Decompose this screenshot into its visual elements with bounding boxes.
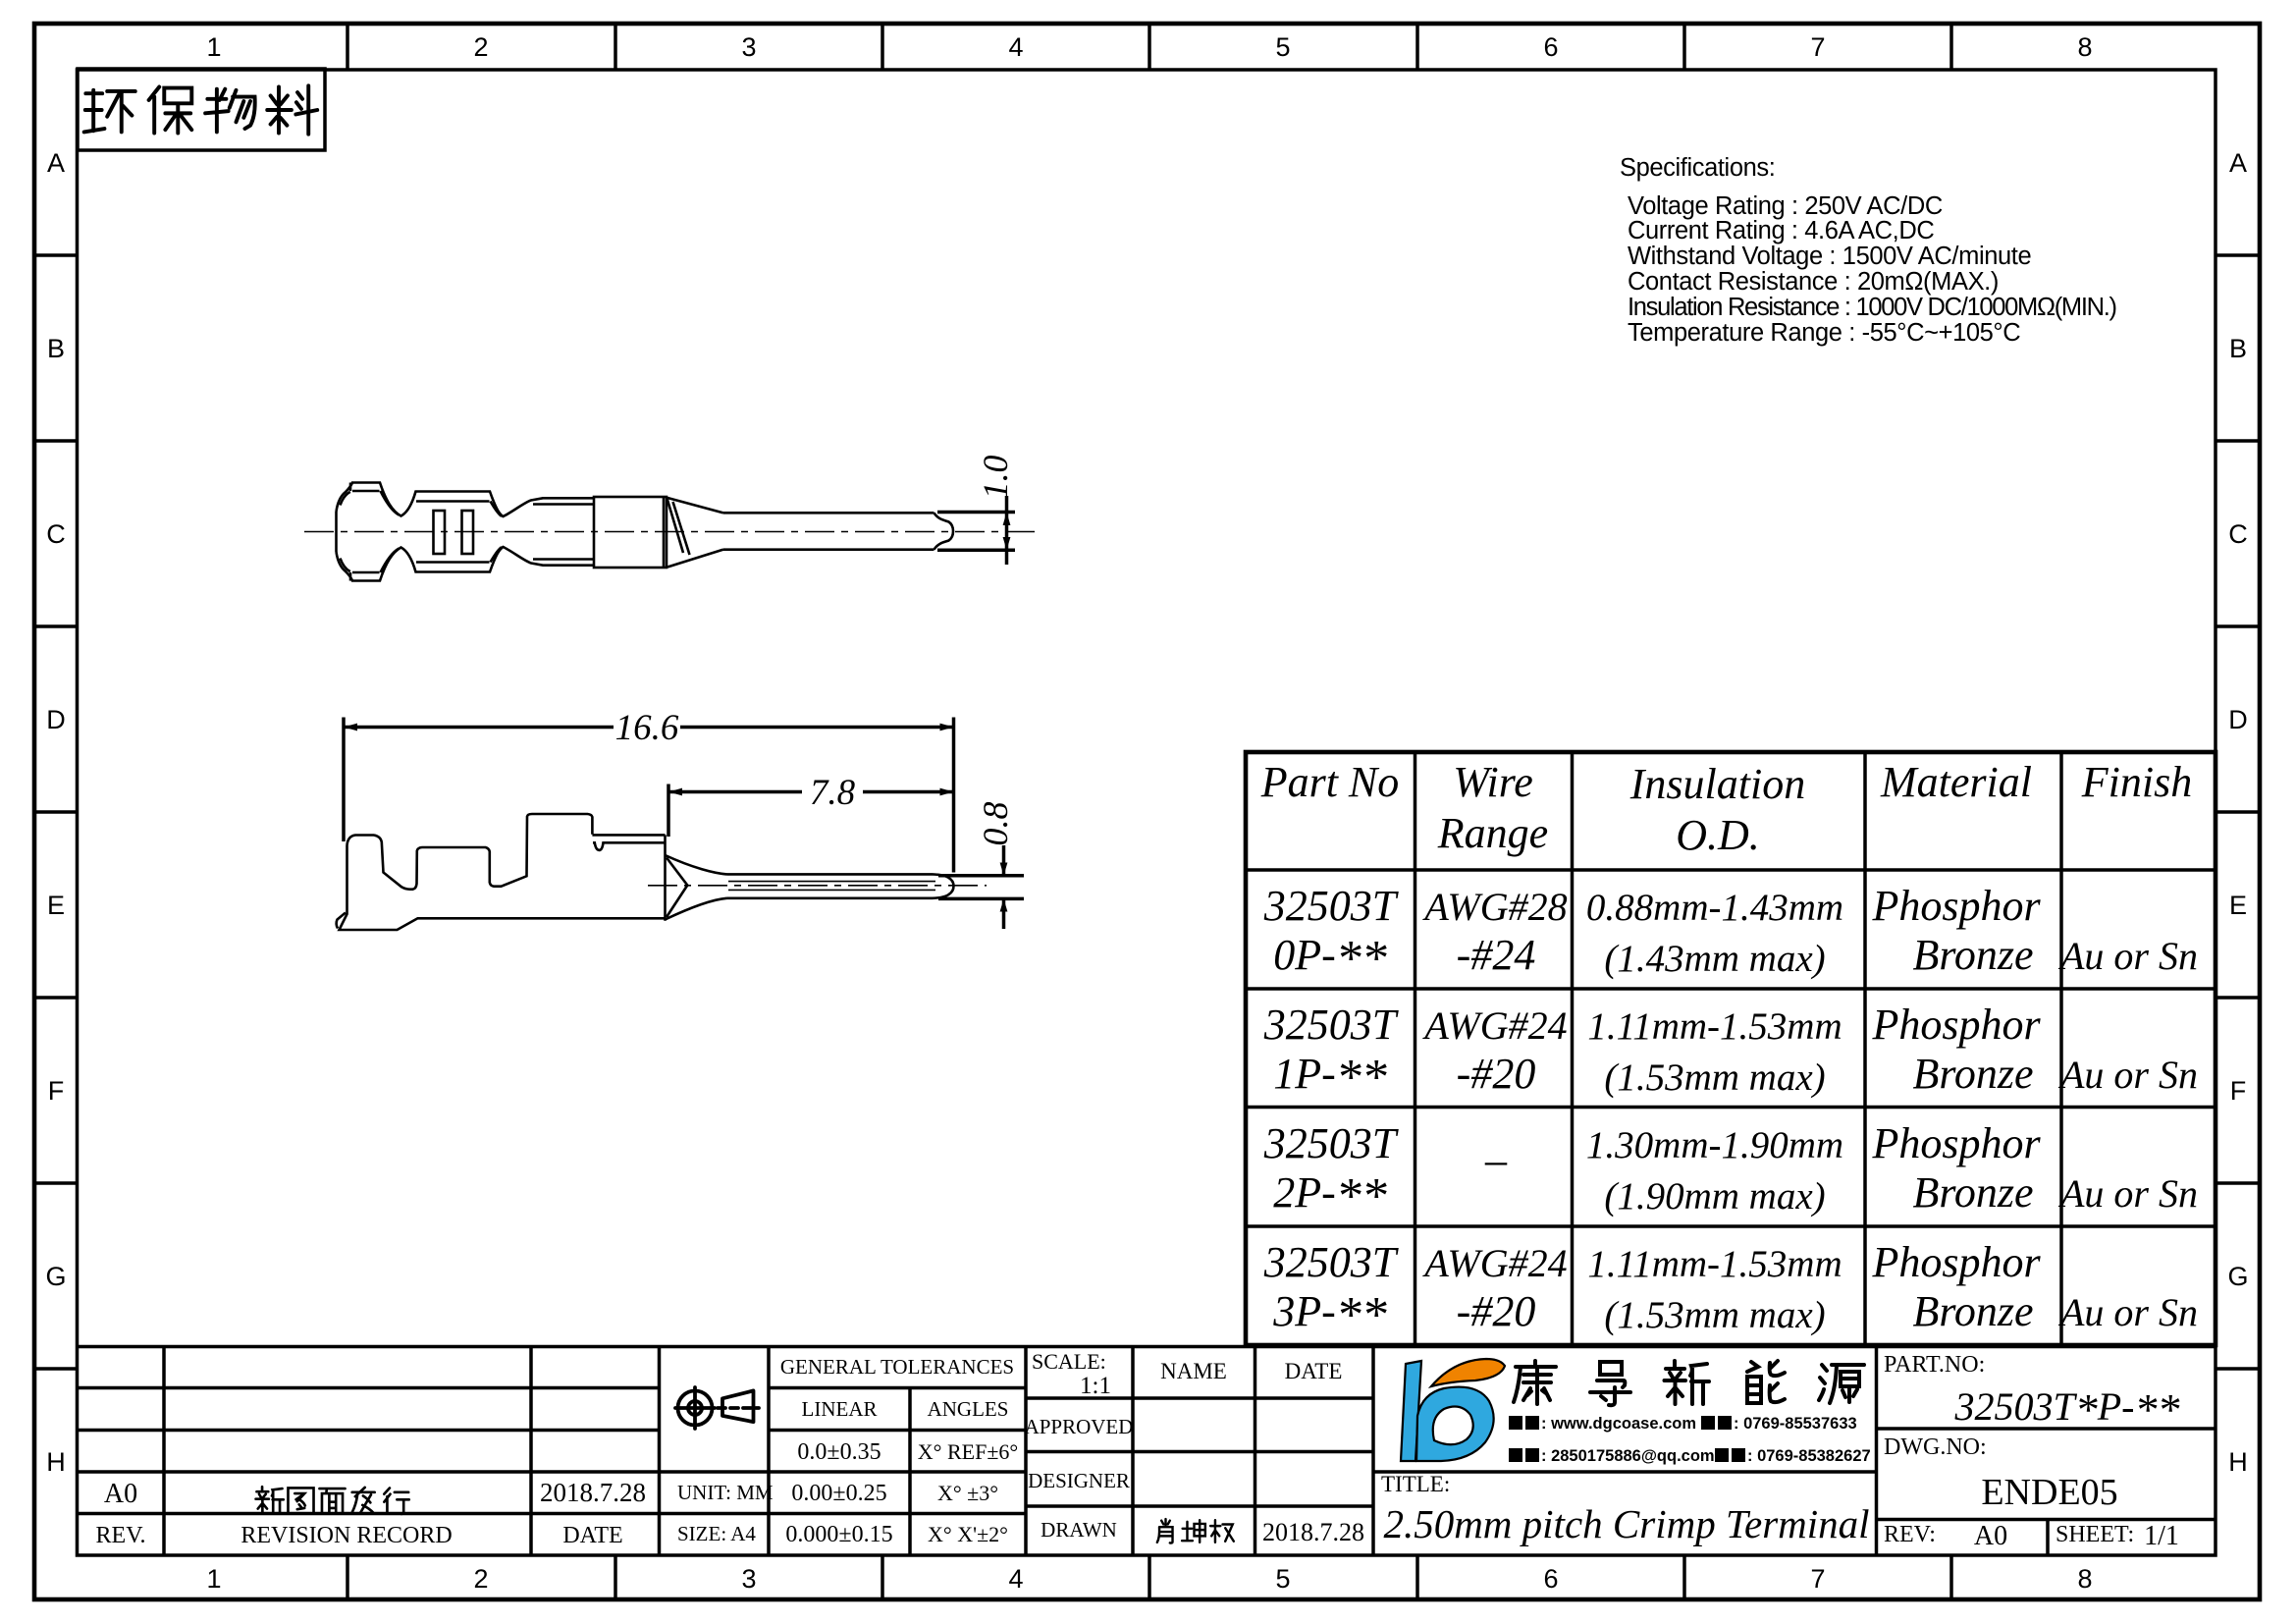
svg-text:NAME: NAME (1160, 1359, 1227, 1383)
svg-text:DRAWN: DRAWN (1041, 1518, 1117, 1542)
svg-text:: www.dgcoase.com: : www.dgcoase.com (1541, 1415, 1696, 1433)
svg-text:G: G (45, 1262, 66, 1291)
svg-text:6: 6 (1543, 1564, 1558, 1594)
svg-text:C: C (2228, 519, 2248, 549)
svg-text:DWG.NO:: DWG.NO: (1884, 1435, 1987, 1460)
svg-text:D: D (46, 705, 66, 734)
svg-text:(1.90mm max): (1.90mm max) (1604, 1175, 1825, 1218)
svg-text:8: 8 (2077, 1564, 2092, 1594)
svg-text:32503T: 32503T (1263, 1119, 1400, 1167)
svg-text:0.8: 0.8 (976, 802, 1015, 846)
svg-text:(1.53mm max): (1.53mm max) (1604, 1294, 1825, 1336)
svg-text:E: E (2229, 891, 2247, 920)
svg-text:Contact Resistance : 20mΩ(MAX.: Contact Resistance : 20mΩ(MAX.) (1628, 268, 1999, 296)
svg-text:APPROVED: APPROVED (1025, 1415, 1134, 1438)
svg-text:A0: A0 (1974, 1521, 2007, 1551)
svg-text:32503T*P-**: 32503T*P-** (1953, 1384, 2179, 1435)
svg-text:7: 7 (1810, 32, 1825, 62)
svg-text:(1.43mm max): (1.43mm max) (1604, 938, 1825, 980)
svg-text:UNIT: MM: UNIT: MM (677, 1481, 774, 1504)
svg-text:LINEAR: LINEAR (802, 1397, 878, 1421)
svg-text:0.00±0.25: 0.00±0.25 (791, 1481, 886, 1506)
svg-text:G: G (2227, 1262, 2248, 1291)
svg-text:F: F (2230, 1076, 2247, 1106)
svg-text:Bronze: Bronze (1912, 931, 2033, 979)
svg-text:DESIGNER: DESIGNER (1028, 1469, 1130, 1492)
svg-text:Material: Material (1880, 758, 2032, 806)
svg-text:Current Rating : 4.6A AC,DC: Current Rating : 4.6A AC,DC (1628, 217, 1934, 244)
svg-text:D: D (2228, 705, 2248, 734)
svg-text:A0: A0 (104, 1479, 137, 1509)
svg-text:–: – (1484, 1136, 1508, 1184)
svg-text:DATE: DATE (562, 1523, 622, 1548)
svg-text:TITLE:: TITLE: (1381, 1472, 1450, 1496)
svg-text:ANGLES: ANGLES (928, 1397, 1009, 1421)
svg-text:Range: Range (1437, 809, 1548, 857)
svg-text:REVISION RECORD: REVISION RECORD (240, 1523, 452, 1548)
svg-text:Phosphor: Phosphor (1871, 1001, 2041, 1049)
svg-text:7: 7 (1810, 1564, 1825, 1594)
svg-text:-#20: -#20 (1457, 1287, 1536, 1335)
svg-text:E: E (47, 891, 65, 920)
svg-text:2: 2 (473, 1564, 488, 1594)
svg-text:: 2850175886@qq.com: : 2850175886@qq.com (1541, 1447, 1715, 1465)
svg-text:Insulation Resistance : 1000V: Insulation Resistance : 1000V DC/1000MΩ(… (1628, 294, 2116, 321)
svg-text:2.50mm pitch Crimp Terminal: 2.50mm pitch Crimp Terminal (1383, 1501, 1869, 1546)
svg-text:0.88mm-1.43mm: 0.88mm-1.43mm (1586, 887, 1843, 929)
svg-text:O.D.: O.D. (1676, 811, 1760, 859)
svg-text:3P-**: 3P-** (1272, 1287, 1387, 1343)
svg-text:A: A (2229, 148, 2247, 178)
svg-text:4: 4 (1008, 32, 1023, 62)
svg-text:: 0769-85537633: : 0769-85537633 (1734, 1415, 1857, 1433)
svg-text:ENDE05: ENDE05 (1981, 1472, 2117, 1513)
svg-text:4: 4 (1008, 1564, 1023, 1594)
svg-text:0.0±0.35: 0.0±0.35 (797, 1439, 881, 1465)
svg-text:1:1: 1:1 (1080, 1373, 1111, 1399)
svg-text:1.11mm-1.53mm: 1.11mm-1.53mm (1587, 1005, 1842, 1048)
svg-text:AWG#24: AWG#24 (1421, 1003, 1567, 1048)
svg-text:0.000±0.15: 0.000±0.15 (785, 1522, 892, 1547)
svg-text:H: H (2228, 1447, 2248, 1477)
svg-text:Phosphor: Phosphor (1871, 1119, 2041, 1167)
svg-text:5: 5 (1275, 1564, 1290, 1594)
svg-text:C: C (46, 519, 66, 549)
svg-text:Part No: Part No (1260, 758, 1400, 806)
svg-text:0P-**: 0P-** (1273, 931, 1387, 987)
svg-text:Insulation: Insulation (1629, 760, 1805, 808)
svg-text:2P-**: 2P-** (1273, 1168, 1387, 1224)
svg-text:1: 1 (206, 1564, 221, 1594)
svg-text:1.30mm-1.90mm: 1.30mm-1.90mm (1586, 1124, 1843, 1166)
svg-text:3: 3 (741, 1564, 756, 1594)
svg-text:: 0769-85382627: : 0769-85382627 (1747, 1447, 1871, 1465)
svg-text:B: B (47, 334, 65, 363)
svg-text:X° ±3°: X° ±3° (937, 1481, 998, 1505)
svg-text:Bronze: Bronze (1912, 1287, 2033, 1335)
svg-text:Au or Sn: Au or Sn (2057, 1290, 2198, 1334)
svg-text:1P-**: 1P-** (1273, 1050, 1387, 1106)
svg-text:X° REF±6°: X° REF±6° (918, 1439, 1018, 1464)
svg-text:Phosphor: Phosphor (1871, 1238, 2041, 1286)
svg-text:Au or Sn: Au or Sn (2057, 1053, 2198, 1097)
svg-text:5: 5 (1275, 32, 1290, 62)
svg-text:AWG#24: AWG#24 (1421, 1241, 1567, 1285)
svg-text:B: B (2229, 334, 2247, 363)
svg-text:Bronze: Bronze (1912, 1168, 2033, 1217)
svg-text:Au or Sn: Au or Sn (2057, 934, 2198, 978)
svg-text:F: F (48, 1076, 65, 1106)
svg-text:16.6: 16.6 (615, 708, 679, 748)
svg-text:A: A (47, 148, 65, 178)
svg-text:H: H (46, 1447, 66, 1477)
svg-text:GENERAL TOLERANCES: GENERAL TOLERANCES (780, 1355, 1014, 1379)
svg-text:X° X'±2°: X° X'±2° (928, 1522, 1008, 1546)
svg-text:-#20: -#20 (1457, 1050, 1536, 1098)
svg-text:1/1: 1/1 (2144, 1521, 2179, 1551)
svg-text:Bronze: Bronze (1912, 1050, 2033, 1098)
svg-text:SHEET:: SHEET: (2056, 1522, 2134, 1547)
svg-text:32503T: 32503T (1263, 1238, 1400, 1286)
svg-text:AWG#28: AWG#28 (1421, 885, 1567, 929)
svg-text:2: 2 (473, 32, 488, 62)
svg-text:2018.7.28: 2018.7.28 (1262, 1518, 1364, 1546)
svg-text:1.0: 1.0 (976, 456, 1015, 500)
svg-text:Finish: Finish (2081, 758, 2192, 806)
svg-text:Au or Sn: Au or Sn (2057, 1171, 2198, 1216)
svg-text:-#24: -#24 (1457, 931, 1536, 979)
svg-text:DATE: DATE (1285, 1359, 1343, 1383)
svg-text:REV:: REV: (1884, 1522, 1936, 1547)
svg-text:32503T: 32503T (1263, 882, 1400, 930)
svg-text:Wire: Wire (1453, 758, 1532, 806)
svg-text:Voltage Rating : 250V AC/DC: Voltage Rating : 250V AC/DC (1628, 192, 1943, 220)
svg-text:SCALE:: SCALE: (1032, 1349, 1106, 1374)
svg-text:1: 1 (206, 32, 221, 62)
svg-text:Withstand Voltage : 1500V AC/m: Withstand Voltage : 1500V AC/minute (1628, 243, 2031, 270)
svg-text:3: 3 (741, 32, 756, 62)
svg-text:REV.: REV. (96, 1523, 146, 1548)
svg-text:Phosphor: Phosphor (1871, 882, 2041, 930)
svg-text:SIZE: A4: SIZE: A4 (677, 1522, 756, 1545)
svg-text:Specifications:: Specifications: (1620, 154, 1775, 182)
svg-text:Temperature Range : -55°C~+105: Temperature Range : -55°C~+105°C (1628, 319, 2020, 347)
svg-text:(1.53mm max): (1.53mm max) (1604, 1056, 1825, 1099)
svg-text:32503T: 32503T (1263, 1001, 1400, 1049)
svg-text:6: 6 (1543, 32, 1558, 62)
svg-text:7.8: 7.8 (810, 773, 856, 813)
svg-text:2018.7.28: 2018.7.28 (540, 1478, 646, 1507)
svg-text:PART.NO:: PART.NO: (1884, 1352, 1985, 1378)
svg-text:1.11mm-1.53mm: 1.11mm-1.53mm (1587, 1243, 1842, 1285)
svg-text:8: 8 (2077, 32, 2092, 62)
